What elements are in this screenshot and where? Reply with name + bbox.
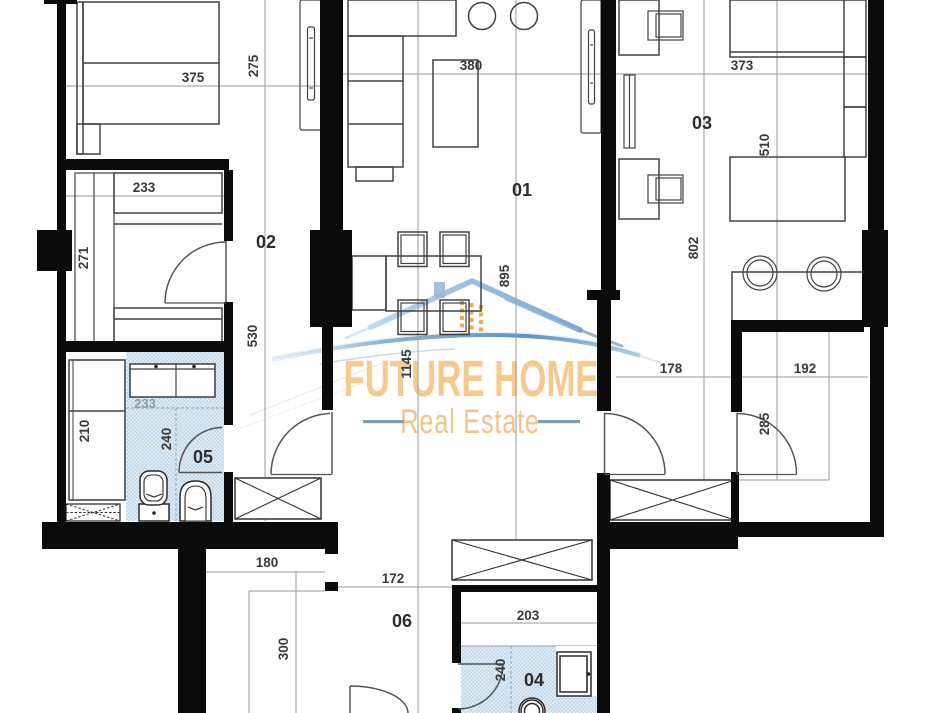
svg-text:02: 02 (256, 232, 276, 252)
svg-text:233: 233 (133, 180, 156, 195)
svg-text:300: 300 (276, 638, 291, 661)
svg-text:172: 172 (382, 571, 405, 586)
svg-text:240: 240 (493, 659, 508, 682)
svg-text:285: 285 (757, 412, 772, 435)
svg-text:895: 895 (497, 264, 512, 287)
svg-text:FUTURE HOME: FUTURE HOME (343, 350, 598, 407)
svg-text:06: 06 (392, 611, 412, 631)
svg-text:03: 03 (692, 113, 712, 133)
svg-text:178: 178 (660, 361, 683, 376)
svg-text:1145: 1145 (399, 349, 414, 379)
svg-text:271: 271 (76, 246, 91, 269)
svg-text:Real Estate: Real Estate (400, 404, 539, 441)
svg-text:530: 530 (245, 325, 260, 348)
svg-text:192: 192 (794, 361, 817, 376)
svg-text:240: 240 (159, 428, 174, 451)
svg-text:04: 04 (524, 670, 544, 690)
svg-text:275: 275 (246, 54, 261, 77)
svg-text:380: 380 (460, 58, 483, 73)
svg-text:510: 510 (757, 134, 772, 157)
svg-text:233: 233 (134, 396, 156, 411)
svg-text:375: 375 (182, 70, 205, 85)
svg-text:203: 203 (517, 608, 540, 623)
svg-text:180: 180 (256, 555, 279, 570)
svg-text:01: 01 (512, 180, 532, 200)
svg-text:210: 210 (77, 420, 92, 443)
svg-text:802: 802 (686, 237, 701, 260)
svg-text:373: 373 (731, 58, 754, 73)
svg-text:05: 05 (193, 447, 213, 467)
